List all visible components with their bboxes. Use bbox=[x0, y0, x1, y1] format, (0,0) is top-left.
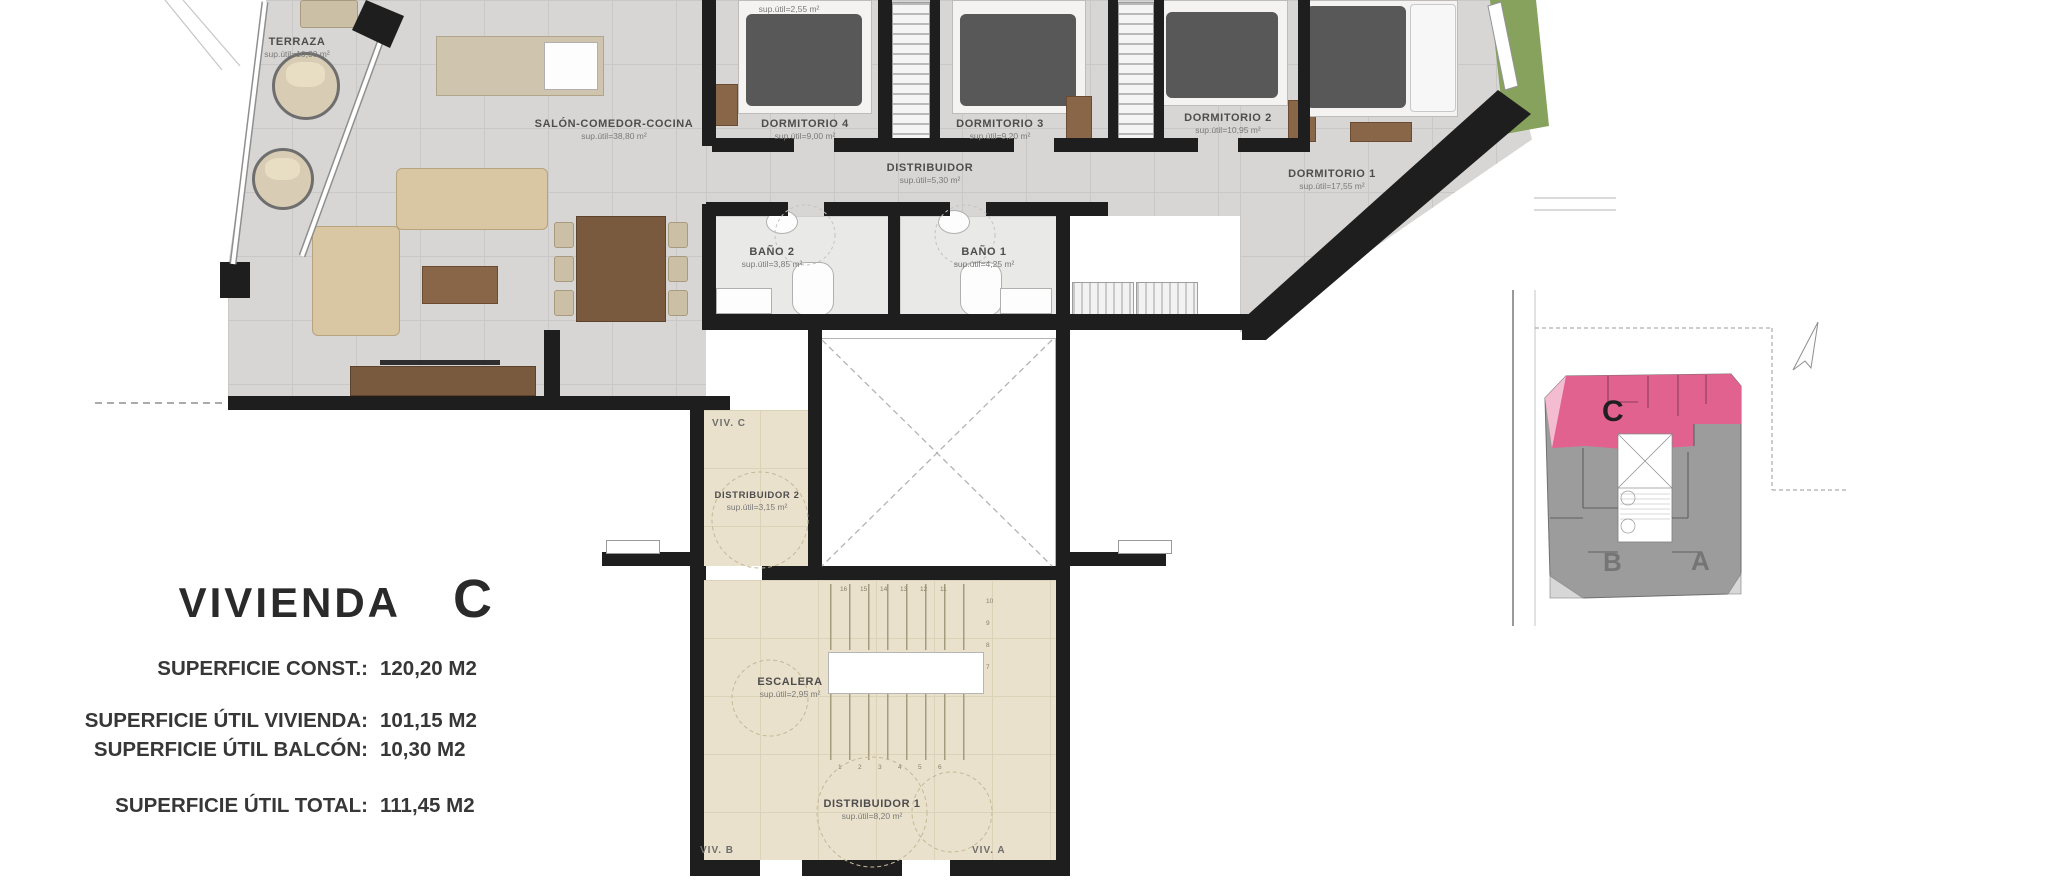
bathtub bbox=[960, 262, 1002, 316]
terrace-chair bbox=[272, 52, 340, 120]
room-label-dormitorio1: DORMITORIO 1 sup.útil=17,55 m² bbox=[1262, 168, 1402, 191]
distribuidor2-floor bbox=[702, 410, 808, 566]
window bbox=[606, 540, 660, 554]
unit-letter-a: A bbox=[1691, 546, 1710, 576]
room-label-dormitorio4: DORMITORIO 4 sup.útil=9,00 m² bbox=[735, 118, 875, 141]
stair-number: 16 bbox=[840, 586, 847, 593]
terrace-chair bbox=[252, 148, 314, 210]
stair-number: 9 bbox=[986, 620, 990, 627]
bed-duvet bbox=[960, 14, 1076, 106]
room-name: DORMITORIO 3 bbox=[930, 118, 1070, 130]
bathtub bbox=[792, 262, 834, 316]
wall bbox=[888, 208, 900, 320]
viv-c-label: VIV. C bbox=[712, 418, 746, 429]
viv-b-label: VIV. B bbox=[700, 845, 734, 856]
bed-duvet bbox=[746, 14, 862, 106]
room-name: SALÓN-COMEDOR-COCINA bbox=[504, 118, 724, 130]
bed-duvet bbox=[1166, 12, 1278, 98]
bed-pillows bbox=[1410, 4, 1456, 112]
dining-chair bbox=[668, 290, 688, 316]
wall bbox=[1298, 0, 1310, 150]
site-line bbox=[165, 0, 222, 70]
sink bbox=[1000, 288, 1052, 314]
room-area: sup.útil=10,95 m² bbox=[1158, 125, 1298, 135]
surface-row-util-vivienda: SUPERFICIE ÚTIL VIVIENDA: 101,15 M2 bbox=[60, 708, 492, 734]
room-label-bano1: BAÑO 1 sup.útil=4,25 m² bbox=[924, 246, 1044, 269]
room-name: DORMITORIO 2 bbox=[1158, 112, 1298, 124]
room-label-escalera: ESCALERA sup.útil=2,95 m² bbox=[730, 676, 850, 699]
surface-value: 120,20 M2 bbox=[380, 656, 492, 682]
wall bbox=[802, 860, 902, 876]
surface-label: SUPERFICIE ÚTIL TOTAL: bbox=[60, 793, 368, 819]
unit-letter-b: B bbox=[1603, 547, 1622, 577]
wall bbox=[762, 566, 1068, 580]
room-name: DISTRIBUIDOR 2 bbox=[697, 490, 817, 501]
bed-bench bbox=[1350, 122, 1412, 142]
surface-row-util-balcon: SUPERFICIE ÚTIL BALCÓN: 10,30 M2 bbox=[60, 737, 492, 763]
dining-chair bbox=[554, 222, 574, 248]
wall bbox=[706, 314, 1058, 330]
surface-label: SUPERFICIE CONST.: bbox=[60, 656, 368, 682]
room-name: ESCALERA bbox=[730, 676, 850, 688]
room-area: sup.útil=9,20 m² bbox=[930, 131, 1070, 141]
dining-chair bbox=[668, 222, 688, 248]
key-plan: C B A bbox=[1488, 276, 1848, 626]
unit-letter-c: C bbox=[1602, 395, 1624, 428]
sofa bbox=[312, 226, 400, 336]
room-area: sup.útil=38,80 m² bbox=[504, 131, 724, 141]
wall bbox=[986, 202, 1108, 216]
room-label-salon: SALÓN-COMEDOR-COCINA sup.útil=38,80 m² bbox=[504, 118, 724, 141]
window bbox=[1118, 540, 1172, 554]
room-label-lavadero: LAVADERO sup.útil=2,55 m² bbox=[724, 0, 854, 14]
room-label-terraza: TERRAZA sup.útil=10,30 m² bbox=[237, 36, 357, 59]
sink bbox=[716, 288, 772, 314]
room-area: sup.útil=4,25 m² bbox=[924, 259, 1044, 269]
room-area: sup.útil=2,95 m² bbox=[730, 689, 850, 699]
wall bbox=[544, 330, 560, 398]
title-unit-letter: C bbox=[453, 568, 492, 630]
room-area: sup.útil=5,30 m² bbox=[860, 175, 1000, 185]
wall bbox=[690, 860, 760, 876]
room-name: DORMITORIO 4 bbox=[735, 118, 875, 130]
stair-number: 14 bbox=[880, 586, 887, 593]
room-area: sup.útil=3,85 m² bbox=[712, 259, 832, 269]
stair-number: 8 bbox=[986, 642, 990, 649]
room-label-distribuidor2: DISTRIBUIDOR 2 sup.útil=3,15 m² bbox=[697, 490, 817, 512]
room-name: DORMITORIO 1 bbox=[1262, 168, 1402, 180]
coffee-table bbox=[422, 266, 498, 304]
north-arrow-icon bbox=[1793, 322, 1818, 370]
room-area: sup.útil=10,30 m² bbox=[237, 49, 357, 59]
wall bbox=[706, 202, 788, 216]
room-name: BAÑO 2 bbox=[712, 246, 832, 258]
wall bbox=[1070, 552, 1166, 566]
surface-label: SUPERFICIE ÚTIL BALCÓN: bbox=[60, 737, 368, 763]
closet bbox=[1118, 2, 1154, 144]
stair-number: 3 bbox=[878, 764, 882, 771]
stair-number: 2 bbox=[858, 764, 862, 771]
room-area: sup.útil=3,15 m² bbox=[697, 502, 817, 512]
surface-label: SUPERFICIE ÚTIL VIVIENDA: bbox=[60, 708, 368, 734]
room-area: sup.útil=17,55 m² bbox=[1262, 181, 1402, 191]
wall bbox=[228, 396, 708, 410]
floorplan-page: 16 15 14 13 12 11 10 9 8 7 1 2 3 4 5 6 T… bbox=[0, 0, 2048, 880]
wall bbox=[220, 262, 250, 298]
info-panel: VIVIENDA C SUPERFICIE CONST.: 120,20 M2 … bbox=[60, 568, 492, 819]
surface-value: 101,15 M2 bbox=[380, 708, 492, 734]
wall bbox=[690, 578, 704, 876]
title-vivienda: VIVIENDA bbox=[179, 579, 401, 627]
room-name: LAVADERO bbox=[724, 0, 854, 3]
stair-number: 5 bbox=[918, 764, 922, 771]
room-area: sup.útil=2,55 m² bbox=[724, 4, 854, 14]
stair-landing bbox=[828, 652, 984, 694]
room-name: DISTRIBUIDOR 1 bbox=[802, 798, 942, 810]
stair-number: 6 bbox=[938, 764, 942, 771]
room-label-bano2: BAÑO 2 sup.útil=3,85 m² bbox=[712, 246, 832, 269]
surface-value: 111,45 M2 bbox=[380, 793, 492, 819]
wall bbox=[808, 326, 822, 572]
wall bbox=[878, 0, 892, 150]
room-label-dormitorio2: DORMITORIO 2 sup.útil=10,95 m² bbox=[1158, 112, 1298, 135]
site-line bbox=[183, 0, 240, 66]
wall bbox=[690, 398, 704, 572]
sofa bbox=[396, 168, 548, 230]
surface-row-util-total: SUPERFICIE ÚTIL TOTAL: 111,45 M2 bbox=[60, 793, 492, 819]
room-label-dormitorio3: DORMITORIO 3 sup.útil=9,20 m² bbox=[930, 118, 1070, 141]
room-name: DISTRIBUIDOR bbox=[860, 162, 1000, 174]
drying-rack bbox=[892, 2, 930, 142]
stair-number: 11 bbox=[940, 586, 947, 593]
stair-flight-upper bbox=[830, 584, 980, 650]
stair-number: 7 bbox=[986, 664, 990, 671]
dining-chair bbox=[554, 256, 574, 282]
wall bbox=[1056, 208, 1070, 876]
wall bbox=[1054, 138, 1198, 152]
stair-number: 13 bbox=[900, 586, 907, 593]
viv-a-label: VIV. A bbox=[972, 845, 1006, 856]
kitchen-sink bbox=[544, 42, 598, 90]
room-area: sup.útil=9,00 m² bbox=[735, 131, 875, 141]
surface-row-const: SUPERFICIE CONST.: 120,20 M2 bbox=[60, 656, 492, 682]
dining-table bbox=[576, 216, 666, 322]
wall bbox=[824, 202, 950, 216]
room-name: TERRAZA bbox=[237, 36, 357, 48]
wall bbox=[1238, 138, 1310, 152]
room-label-distribuidor: DISTRIBUIDOR sup.útil=5,30 m² bbox=[860, 162, 1000, 185]
wall bbox=[1108, 0, 1118, 150]
room-area: sup.útil=8,20 m² bbox=[802, 811, 942, 821]
dining-chair bbox=[668, 256, 688, 282]
stair-number: 10 bbox=[986, 598, 993, 605]
bed-duvet bbox=[1306, 6, 1406, 108]
surface-value: 10,30 M2 bbox=[380, 737, 492, 763]
stair-number: 1 bbox=[838, 764, 842, 771]
room-label-distribuidor1: DISTRIBUIDOR 1 sup.útil=8,20 m² bbox=[802, 798, 942, 821]
stair-number: 12 bbox=[920, 586, 927, 593]
stair-number: 15 bbox=[860, 586, 867, 593]
stair-number: 4 bbox=[898, 764, 902, 771]
wall bbox=[950, 860, 1070, 876]
terrace-table bbox=[300, 0, 358, 28]
dining-chair bbox=[554, 290, 574, 316]
room-name: BAÑO 1 bbox=[924, 246, 1044, 258]
wall bbox=[602, 552, 694, 566]
wall bbox=[1058, 314, 1258, 330]
stair-flight-lower bbox=[830, 694, 980, 760]
page-title: VIVIENDA C bbox=[60, 568, 492, 630]
tv bbox=[380, 360, 500, 365]
tv-sideboard bbox=[350, 366, 536, 396]
elevator-shaft bbox=[820, 338, 1056, 570]
